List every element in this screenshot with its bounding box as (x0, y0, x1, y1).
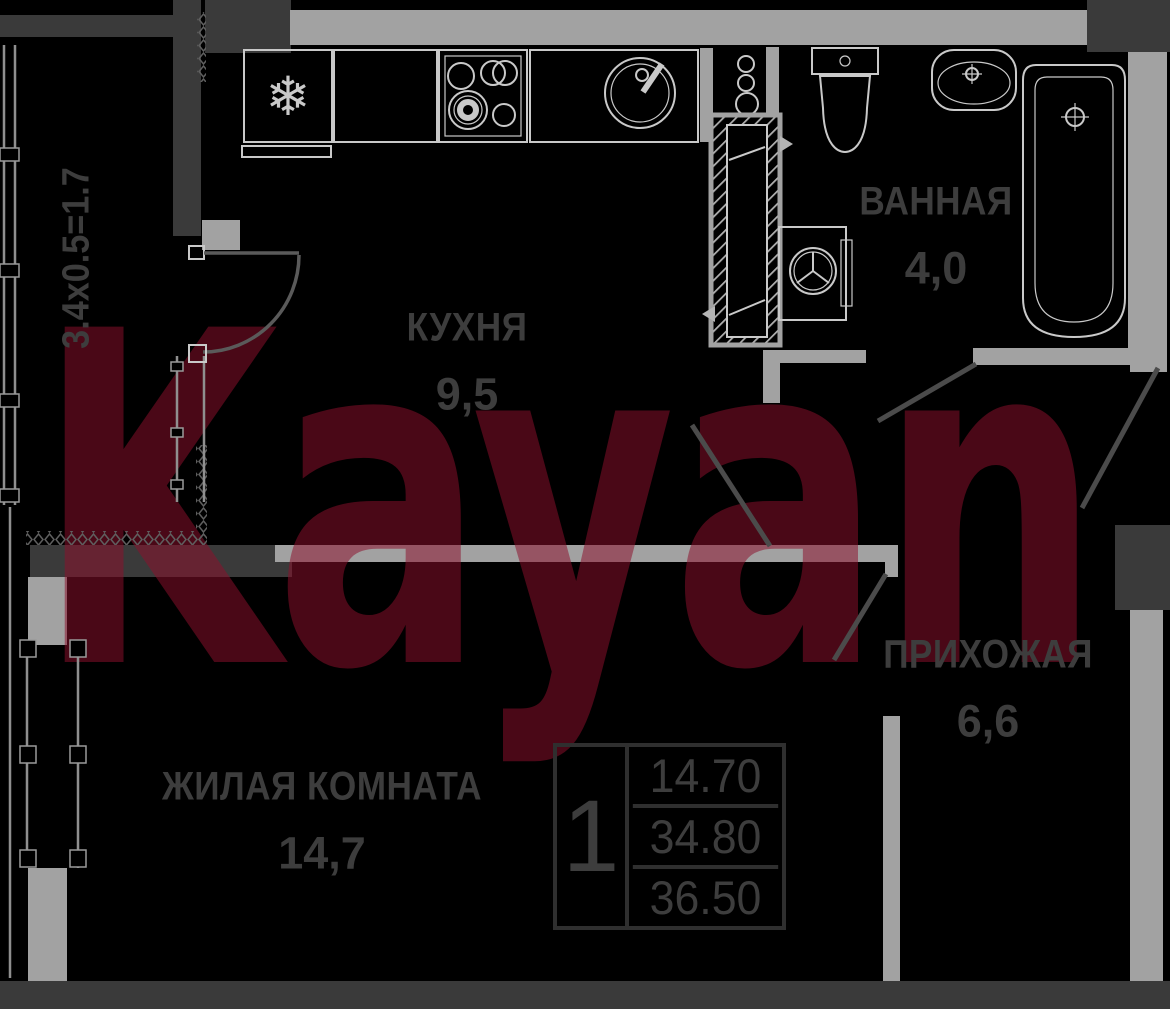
kitchen-area: 9,5 (398, 369, 535, 421)
living-room-area: 14,7 (140, 828, 504, 880)
room-label-kitchen: КУХНЯ 9,5 (398, 306, 535, 421)
balcony-dimension-label: 3.4x0.5=1.7 (56, 167, 99, 349)
bathroom-area: 4,0 (849, 243, 1023, 295)
bathroom-sink-icon (932, 50, 1016, 110)
room-label-hallway: ПРИХОЖАЯ 6,6 (869, 633, 1107, 748)
total-area-value: 36.50 (633, 869, 778, 926)
room-label-bathroom: ВАННАЯ 4,0 (849, 180, 1023, 295)
kitchen-sink-icon (530, 50, 698, 142)
rooms-count-cell: 1 (557, 747, 629, 926)
vent-arrow-icon (780, 136, 793, 152)
kitchen-counter-icon (242, 146, 331, 157)
toilet-icon (812, 48, 878, 152)
balcony-door-icon (189, 246, 299, 362)
bathroom-door-leaf (878, 364, 976, 421)
insulation-strip-icon (197, 12, 206, 82)
kitchen-name: КУХНЯ (407, 306, 528, 351)
bathtub-icon (1023, 65, 1125, 337)
living-room-window-icon (10, 507, 86, 978)
insulation-strip-icon (196, 445, 207, 545)
area-value: 34.80 (633, 808, 778, 869)
kitchen-counter-icon (334, 50, 437, 142)
fridge-icon: ❄ (244, 50, 332, 142)
washing-machine-icon (779, 227, 852, 320)
hallway-name: ПРИХОЖАЯ (883, 633, 1093, 678)
area-info-table: 1 14.70 34.80 36.50 (553, 743, 786, 930)
floor-plan: Kayan (0, 0, 1170, 1009)
snowflake-icon: ❄ (265, 65, 310, 128)
bathroom-name: ВАННАЯ (859, 180, 1012, 225)
stove-icon (439, 50, 527, 142)
insulation-strip-icon (26, 531, 204, 545)
room-label-living-room: ЖИЛАЯ КОМНАТА 14,7 (140, 765, 504, 880)
water-heater-icon (736, 47, 779, 115)
balcony-window-icon (0, 45, 19, 505)
living-room-name: ЖИЛАЯ КОМНАТА (162, 765, 482, 810)
entrance-door-leaf (1082, 368, 1158, 508)
living-area-value: 14.70 (633, 747, 778, 808)
kitchen-door-leaf (692, 425, 770, 546)
area-values-column: 14.70 34.80 36.50 (629, 747, 782, 926)
hallway-area: 6,6 (869, 696, 1107, 748)
